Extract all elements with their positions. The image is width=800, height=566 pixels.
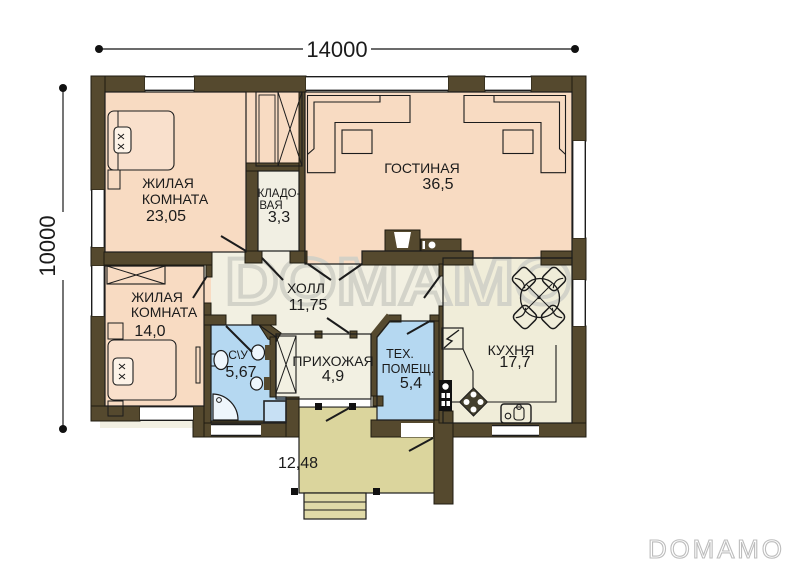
svg-text:3,3: 3,3 [268,209,290,226]
svg-text:5,4: 5,4 [400,375,422,392]
svg-text:ГОСТИНАЯ: ГОСТИНАЯ [384,160,460,176]
svg-text:ЖИЛАЯ: ЖИЛАЯ [131,289,183,305]
svg-text:4,9: 4,9 [322,368,344,385]
svg-text:14000: 14000 [306,37,367,62]
svg-text:11,75: 11,75 [289,297,328,314]
svg-text:12,48: 12,48 [278,455,318,472]
svg-text:ХОЛЛ: ХОЛЛ [287,280,325,296]
svg-text:23,05: 23,05 [146,208,186,225]
svg-text:36,5: 36,5 [422,176,453,193]
svg-text:17,7: 17,7 [499,354,530,371]
svg-text:ТЕХ.: ТЕХ. [386,347,414,361]
svg-text:14,0: 14,0 [134,323,165,340]
svg-text:10000: 10000 [35,215,60,276]
svg-text:С\У: С\У [228,348,248,362]
svg-text:ПОМЕЩ.: ПОМЕЩ. [382,362,435,376]
svg-text:КЛАДО-: КЛАДО- [258,188,301,200]
svg-text:КОМНАТА: КОМНАТА [142,191,209,207]
svg-text:КОМНАТА: КОМНАТА [131,304,198,320]
svg-text:ЖИЛАЯ: ЖИЛАЯ [142,175,194,191]
svg-text:ПРИХОЖАЯ: ПРИХОЖАЯ [292,353,373,369]
svg-text:5,67: 5,67 [225,364,256,381]
